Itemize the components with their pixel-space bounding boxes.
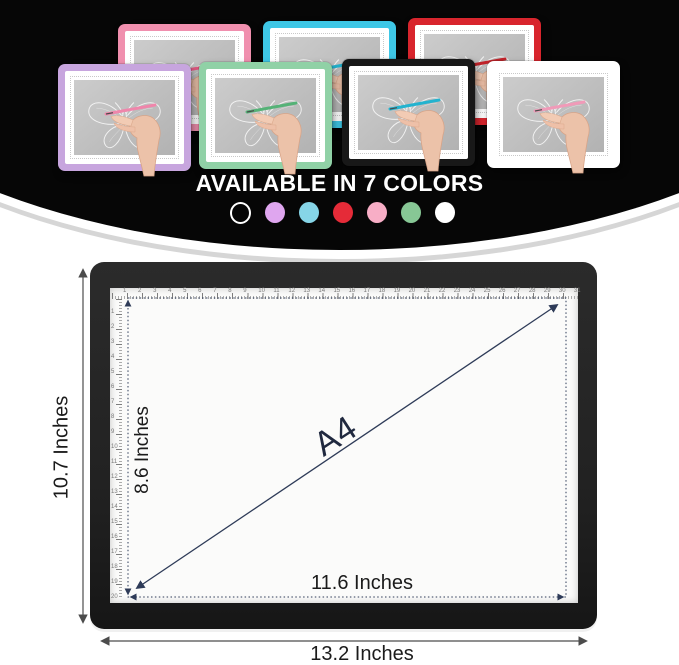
- inner-height-label: 8.6 Inches: [132, 392, 154, 508]
- dimension-lines: [0, 0, 679, 665]
- outer-height-label: 10.7 Inches: [51, 378, 74, 518]
- inner-width-label: 11.6 Inches: [262, 572, 462, 595]
- outer-width-label: 13.2 Inches: [262, 643, 462, 665]
- product-image: AVAILABLE IN 7 COLORS 123456789101112131…: [0, 0, 679, 665]
